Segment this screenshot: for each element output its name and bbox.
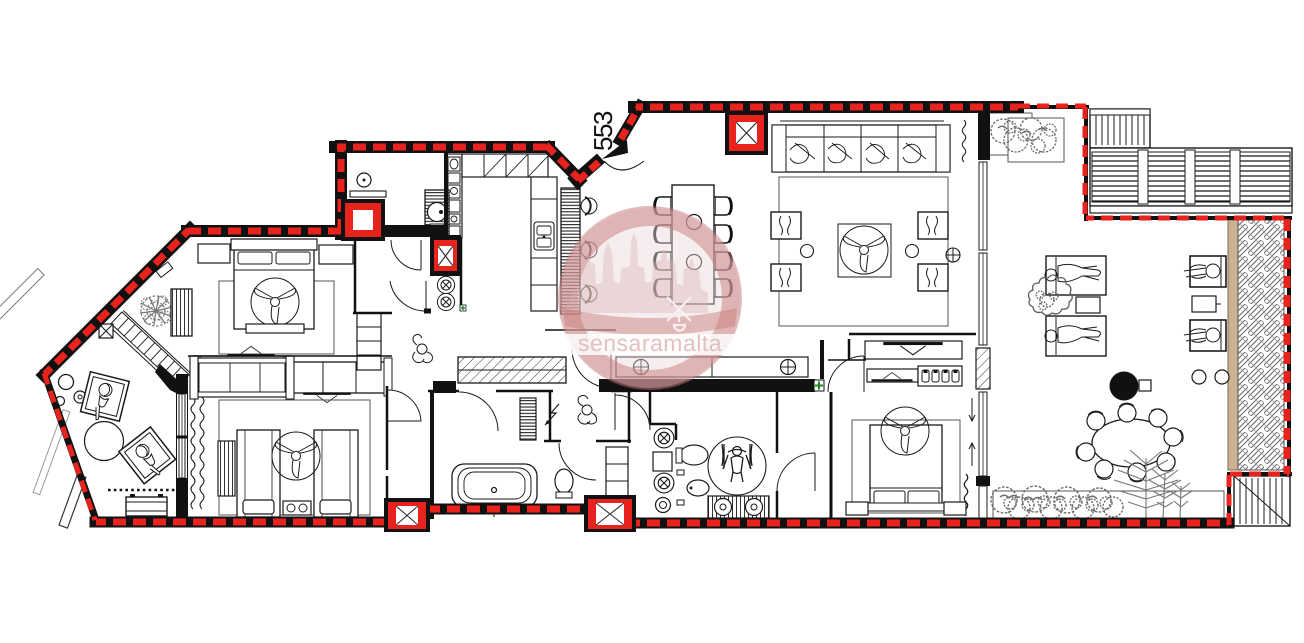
svg-text:553: 553 — [588, 111, 618, 151]
svg-text:sensaramalta: sensaramalta — [578, 330, 722, 356]
